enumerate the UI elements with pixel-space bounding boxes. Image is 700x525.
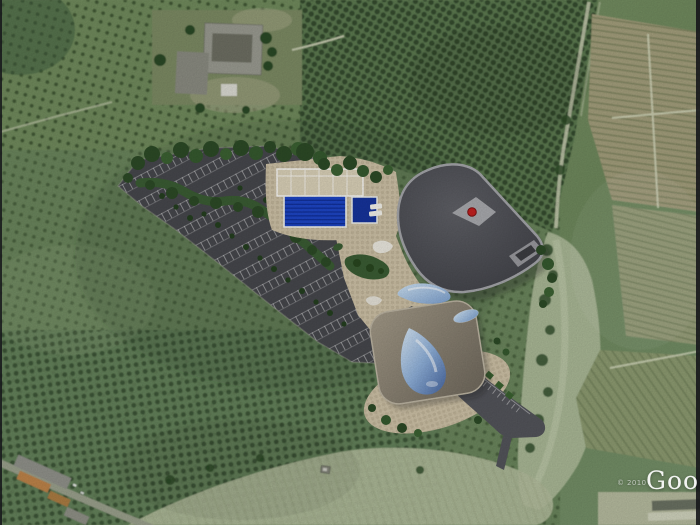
- watermark-copyright: © 2010: [617, 479, 646, 487]
- google-logo-watermark: Google: [646, 466, 700, 495]
- map-viewport[interactable]: © 2010 Google: [0, 0, 700, 525]
- screen-edge-left: [0, 0, 2, 525]
- screen-edge-right: [696, 0, 700, 525]
- film-grain: [0, 0, 700, 525]
- satellite-scene: [0, 0, 700, 525]
